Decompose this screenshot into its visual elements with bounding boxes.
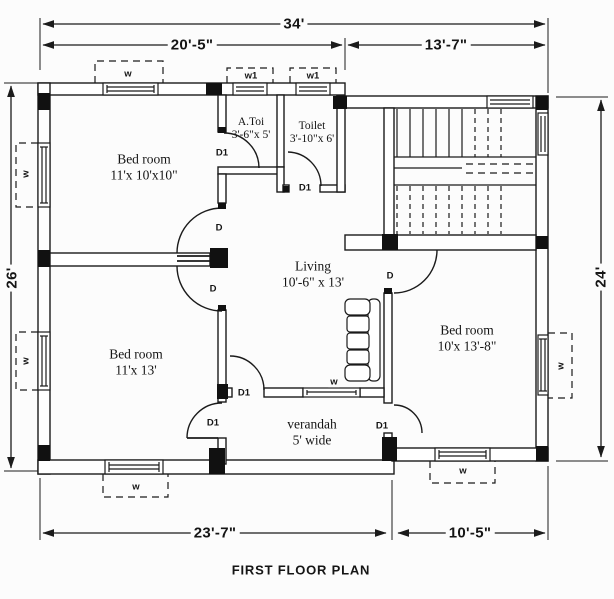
window1-label: w1 <box>245 71 258 81</box>
door-arc-verandah-bedroom <box>394 405 422 433</box>
room-label-atoi: A.Toi 3'-6"x 5' <box>232 116 271 142</box>
window-top-bedroom <box>103 83 158 95</box>
window-label: w <box>459 466 466 476</box>
door-arc-bedroom-bottom-right <box>394 250 437 293</box>
door1-label: D1 <box>374 421 390 431</box>
window-bottom-right-bedroom <box>435 448 490 461</box>
room-label-living: Living 10'-6" x 13' <box>282 258 344 289</box>
dim-width-top-right: 13'-7" <box>422 38 471 53</box>
dim-width-total: 34' <box>280 17 307 32</box>
door1-label: D1 <box>216 148 228 158</box>
room-label-bedroom-top-left: Bed room 11'x 10'x10" <box>110 151 177 182</box>
sofa <box>345 299 380 381</box>
door1-label: D1 <box>297 183 313 193</box>
window-left-lower <box>38 332 50 390</box>
window-bottom-left-bedroom <box>105 460 163 474</box>
room-size: 10'-6" x 13' <box>282 274 344 290</box>
window-label: w <box>132 482 139 492</box>
window-verandah <box>303 388 360 397</box>
room-name: Bed room <box>438 322 497 338</box>
dim-width-bottom-left: 23'-7" <box>191 526 240 541</box>
room-label-verandah: verandah 5' wide <box>287 416 336 447</box>
room-name: verandah <box>287 416 336 432</box>
window-label: w <box>124 69 131 79</box>
window-label: w <box>21 170 31 177</box>
room-name: Bed room <box>110 151 177 167</box>
window-label: w <box>21 357 31 364</box>
door-arc-toilet <box>288 152 321 186</box>
room-label-bedroom-bottom-right: Bed room 10'x 13'-8" <box>438 322 497 353</box>
room-name: A.Toi <box>232 116 271 129</box>
door1-label: D1 <box>236 388 252 398</box>
room-size: 3'-10"x 6' <box>290 133 334 146</box>
room-size: 10'x 13'-8" <box>438 338 497 354</box>
window-right-bedroom <box>538 335 548 395</box>
window-toilet <box>296 83 330 95</box>
room-label-bedroom-bottom-left: Bed room 11'x 13' <box>109 346 163 377</box>
room-size: 11'x 13' <box>109 362 163 378</box>
window-label: w <box>556 362 566 369</box>
window-stair-right <box>538 113 548 155</box>
door1-label: D1 <box>205 418 221 428</box>
window-atoi <box>233 83 267 95</box>
room-size: 5' wide <box>287 432 336 448</box>
room-name: Bed room <box>109 346 163 362</box>
window-label: w <box>328 377 339 387</box>
room-name: Living <box>282 258 344 274</box>
window-stair-top <box>487 96 533 108</box>
window-left-upper <box>38 143 50 207</box>
staircase <box>394 109 536 234</box>
dim-width-bottom-right: 10'-5" <box>446 526 495 541</box>
door-label: D <box>216 223 223 233</box>
dim-width-top-left: 20'-5" <box>168 38 217 53</box>
window1-label: w1 <box>307 71 320 81</box>
room-name: Toilet <box>290 120 334 133</box>
door-arc-living-verandah <box>230 356 264 390</box>
door-label: D <box>385 271 396 281</box>
room-size: 3'-6"x 5' <box>232 129 271 142</box>
room-label-toilet: Toilet 3'-10"x 6' <box>290 120 334 146</box>
dim-height-right: 24' <box>594 263 609 290</box>
room-size: 11'x 10'x10" <box>110 167 177 183</box>
page-title: FIRST FLOOR PLAN <box>232 563 370 578</box>
door-label: D <box>210 284 217 294</box>
dim-height-left: 26' <box>5 264 20 291</box>
floor-plan-drawing <box>0 0 614 599</box>
floor-plan: 34' 20'-5" 13'-7" 26' 24' 23'-7" 10'-5" … <box>0 0 614 599</box>
